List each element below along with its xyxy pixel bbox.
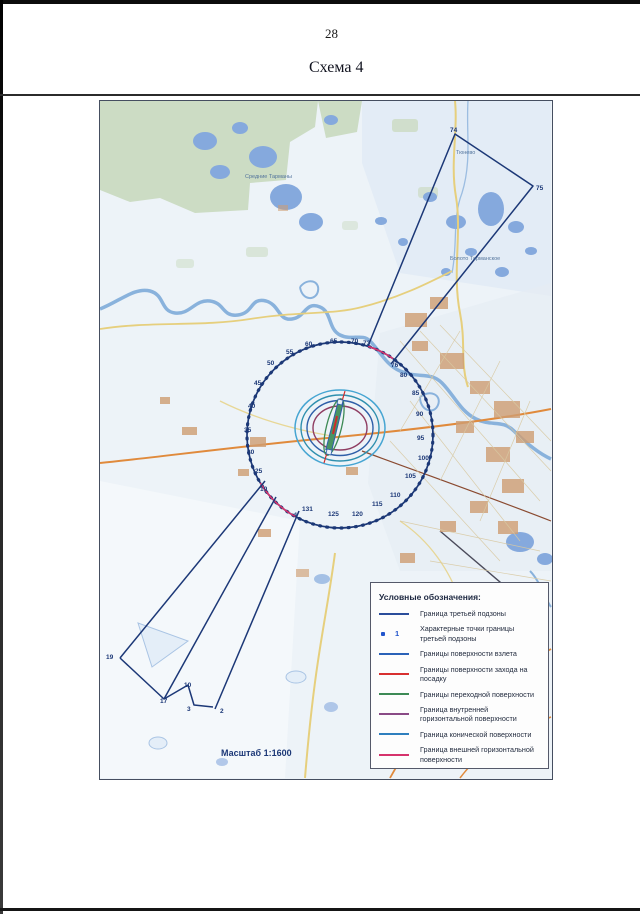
point-dot	[381, 632, 385, 636]
place-label: Болото Тарманское	[450, 256, 500, 262]
legend-item: Граница конической поверхности	[379, 730, 542, 739]
legend-item: Граница внутренней горизонтальной поверх…	[379, 705, 542, 724]
legend-item: Границы переходной поверхности	[379, 690, 542, 699]
boundary-point-label: 65	[330, 338, 338, 345]
boundary-point-label: 131	[302, 506, 313, 513]
boundary-point-label: 3	[187, 706, 191, 713]
legend-line-swatch	[379, 754, 411, 756]
line-sample	[379, 754, 409, 756]
line-sample	[379, 613, 409, 615]
boundary-point-label: 25	[255, 468, 263, 475]
legend-item-label: Характерные точки границы третьей подзон…	[420, 624, 542, 643]
boundary-point-label: 75	[536, 185, 544, 192]
boundary-point-label: 35	[244, 427, 252, 434]
legend-items: Граница третьей подзоны1Характерные точк…	[379, 609, 542, 764]
boundary-point-label: 85	[412, 390, 420, 397]
boundary-point-label: 115	[372, 501, 383, 508]
boundary-point-label: 76	[391, 362, 399, 369]
boundary-point-label: 95	[417, 435, 425, 442]
boundary-point-label: 45	[254, 380, 262, 387]
boundary-point-label: 10	[184, 682, 192, 689]
point-number: 1	[395, 629, 399, 638]
boundary-point-label: 80	[400, 372, 408, 379]
boundary-point-label: 2	[220, 708, 224, 715]
legend-item-label: Граница конической поверхности	[420, 730, 531, 739]
legend-item: Границы поверхности взлета	[379, 649, 542, 658]
boundary-point-label: 105	[405, 473, 416, 480]
line-sample	[379, 673, 409, 675]
legend-item: Граница внешней горизонтальной поверхнос…	[379, 745, 542, 764]
boundary-point-label: 50	[267, 360, 275, 367]
legend-line-swatch	[379, 613, 411, 615]
legend-item-label: Граница третьей подзоны	[420, 609, 506, 618]
legend-point-swatch: 1	[379, 629, 411, 638]
line-sample	[379, 713, 409, 715]
boundary-point-label: 19	[106, 654, 114, 661]
runway-end-marker-south	[326, 449, 332, 455]
boundary-point-label: 1	[294, 512, 298, 519]
legend-item-label: Границы поверхности взлета	[420, 649, 517, 658]
title-rule	[0, 94, 640, 96]
scheme-title: Схема 4	[309, 59, 364, 77]
legend-item: Границы поверхности захода на посадку	[379, 665, 542, 684]
scale-label: Масштаб 1:1600	[221, 748, 292, 758]
legend-item-label: Граница внутренней горизонтальной поверх…	[420, 705, 542, 724]
boundary-point-label: 40	[248, 403, 256, 410]
boundary-point-label: 19	[260, 486, 268, 493]
boundary-point-label: 73	[363, 340, 371, 347]
boundary-point-label: 100	[418, 455, 429, 462]
place-label: Средние Тарманы	[245, 174, 292, 180]
boundary-point-label: 17	[160, 698, 168, 705]
boundary-point-label: 110	[390, 492, 401, 499]
page-number: 28	[325, 26, 338, 42]
line-sample	[379, 693, 409, 695]
legend-line-swatch	[379, 673, 411, 675]
legend-line-swatch	[379, 713, 411, 715]
legend-line-swatch	[379, 653, 411, 655]
legend-item: 1Характерные точки границы третьей подзо…	[379, 624, 542, 643]
boundary-point-label: 90	[416, 411, 424, 418]
legend-item: Граница третьей подзоны	[379, 609, 542, 618]
scan-artifact-top	[0, 0, 640, 4]
legend-line-swatch	[379, 693, 411, 695]
scan-artifact-left	[0, 0, 3, 914]
runway-end-marker-north	[337, 399, 343, 405]
line-sample	[379, 733, 409, 735]
boundary-point-label: 70	[351, 338, 359, 345]
boundary-point-label: 55	[286, 349, 294, 356]
boundary-point-label: 74	[450, 127, 458, 134]
legend-item-label: Границы переходной поверхности	[420, 690, 534, 699]
legend-item-label: Границы поверхности захода на посадку	[420, 665, 542, 684]
legend-box: Условные обозначения: Граница третьей по…	[370, 582, 549, 769]
scan-artifact-bottom	[0, 908, 640, 911]
place-label: Тюнево	[456, 150, 475, 156]
legend-title: Условные обозначения:	[379, 592, 542, 602]
document-page: 28 Схема 4	[0, 0, 640, 914]
line-sample	[379, 653, 409, 655]
boundary-point-label: 120	[352, 511, 363, 518]
legend-line-swatch	[379, 733, 411, 735]
boundary-point-label: 30	[247, 449, 255, 456]
legend-item-label: Граница внешней горизонтальной поверхнос…	[420, 745, 542, 764]
boundary-point-label: 125	[328, 511, 339, 518]
runway-group	[320, 391, 349, 463]
boundary-point-label: 60	[305, 341, 313, 348]
